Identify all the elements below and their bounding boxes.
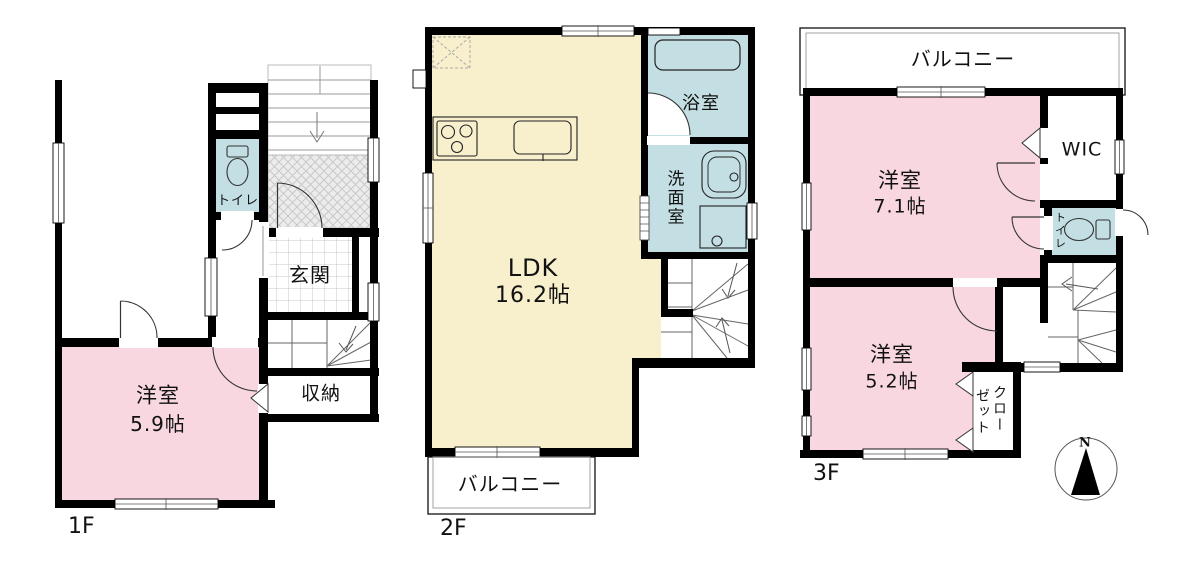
ldk-fill-a — [432, 35, 648, 358]
room-label-toilet-1f: トイレ — [217, 195, 259, 208]
ldk-fill-b — [432, 358, 632, 448]
floor-label-1f: 1F — [68, 516, 95, 538]
room-label-yoshitsu-1f: 洋室 — [136, 386, 180, 407]
room-size-ldk: 16.2帖 — [495, 285, 571, 307]
stairs-3f — [1048, 263, 1116, 363]
room-label-closet-line2: ゼット — [975, 388, 989, 436]
balcony-label-3f: バルコニー — [911, 49, 1016, 69]
room-label-storage: 収納 — [301, 385, 341, 404]
room-label-closet-line1: クロー — [992, 385, 1006, 433]
approach-steps — [268, 65, 371, 155]
room-label-yoshitsu52: 洋室 — [870, 345, 914, 366]
bath-door-gap — [647, 136, 690, 145]
room-label-washroom: 洗面室 — [665, 170, 682, 227]
room-size-yoshitsu-1f: 5.9帖 — [130, 414, 186, 434]
stairs-1f — [268, 320, 371, 368]
room-label-bath: 浴室 — [682, 95, 720, 113]
floorplan-canvas: トイレ 玄関 収納 洋室 5.9帖 1F LDK 16.2帖 浴室 洗面室 バル… — [0, 0, 1200, 566]
entrance-porch — [268, 155, 370, 228]
stairs-2f — [661, 259, 748, 358]
ldk-fill-c — [648, 259, 661, 358]
floor-label-3f: 3F — [813, 463, 840, 485]
balcony-label-2f: バルコニー — [458, 474, 563, 494]
room-label-toilet-3f: トイレ — [1055, 212, 1066, 251]
room-size-yoshitsu52: 5.2帖 — [865, 373, 918, 392]
accordion-door-icon — [640, 196, 649, 240]
room-label-genkan: 玄関 — [289, 265, 331, 285]
floor-1f-plan — [53, 65, 379, 510]
room-label-wic: WIC — [1062, 141, 1103, 160]
floor-label-2f: 2F — [440, 518, 467, 540]
room-label-ldk: LDK — [508, 256, 559, 280]
floorplan-drawing — [0, 0, 1200, 566]
compass-north-label: N — [1079, 437, 1091, 450]
room-label-yoshitsu71: 洋室 — [878, 171, 922, 192]
room-size-yoshitsu71: 7.1帖 — [873, 198, 926, 217]
